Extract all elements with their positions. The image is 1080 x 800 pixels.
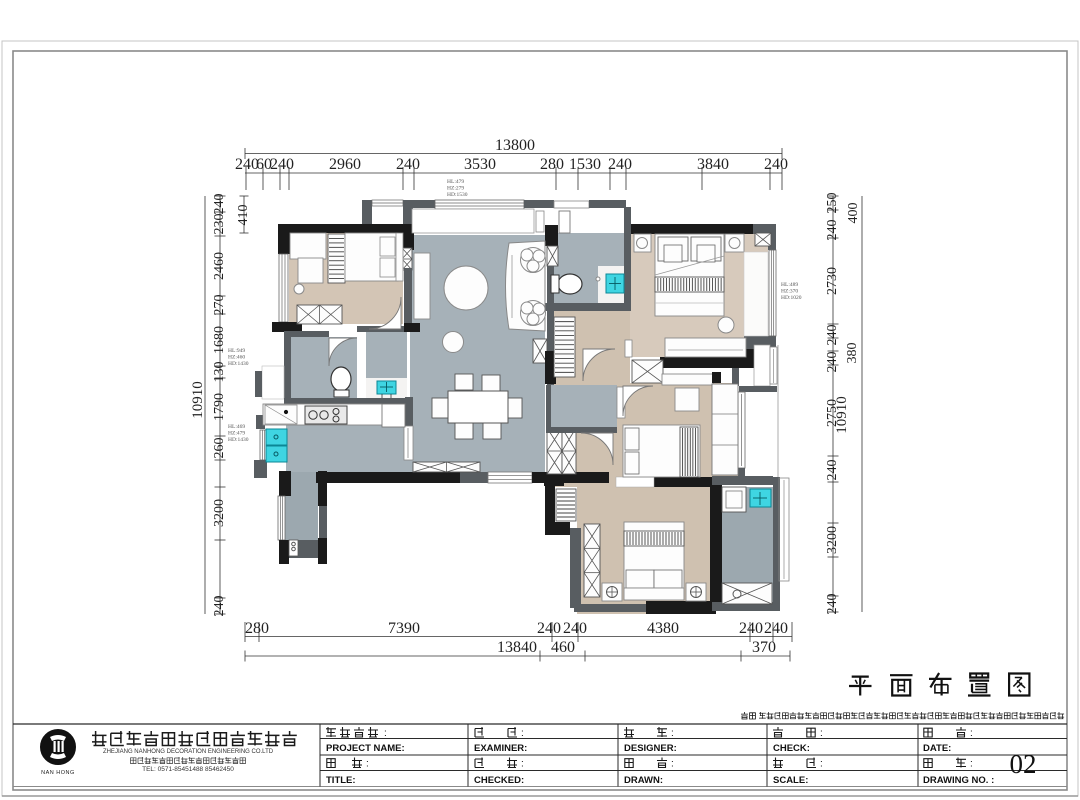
svg-text:240: 240 bbox=[825, 594, 840, 615]
svg-text:EXAMINER:: EXAMINER: bbox=[474, 743, 527, 754]
svg-text:2730: 2730 bbox=[825, 267, 840, 295]
svg-text:380: 380 bbox=[845, 343, 860, 364]
svg-text:3200: 3200 bbox=[825, 526, 840, 554]
svg-text:1680: 1680 bbox=[212, 326, 227, 354]
svg-text:7390: 7390 bbox=[388, 620, 420, 637]
svg-text::: : bbox=[671, 759, 674, 770]
svg-text:HD:1020: HD:1020 bbox=[781, 295, 802, 301]
svg-text:230: 230 bbox=[212, 214, 227, 235]
svg-text::: : bbox=[970, 728, 973, 739]
svg-text:240: 240 bbox=[212, 194, 227, 215]
svg-text:HD:1530: HD:1530 bbox=[447, 192, 468, 198]
svg-text::: : bbox=[366, 759, 369, 770]
svg-text:HL:489: HL:489 bbox=[781, 282, 798, 288]
svg-text::: : bbox=[970, 759, 973, 770]
svg-text:240: 240 bbox=[764, 620, 788, 637]
svg-text:240: 240 bbox=[825, 325, 840, 346]
svg-text::: : bbox=[820, 728, 823, 739]
svg-text:240: 240 bbox=[396, 156, 420, 173]
svg-text:DATE:: DATE: bbox=[923, 743, 951, 754]
svg-text:CHECKED:: CHECKED: bbox=[474, 775, 524, 786]
svg-text:250: 250 bbox=[825, 193, 840, 214]
svg-text:TITLE:: TITLE: bbox=[326, 775, 356, 786]
svg-text:DRAWN:: DRAWN: bbox=[624, 775, 663, 786]
svg-text:HZ:479: HZ:479 bbox=[228, 431, 245, 437]
svg-text:260: 260 bbox=[212, 438, 227, 459]
svg-text:CHECK:: CHECK: bbox=[773, 743, 810, 754]
svg-text:400: 400 bbox=[846, 203, 861, 224]
svg-text:240: 240 bbox=[212, 596, 227, 617]
svg-text:13800: 13800 bbox=[495, 137, 535, 154]
svg-text:DESIGNER:: DESIGNER: bbox=[624, 743, 677, 754]
svg-text:240: 240 bbox=[563, 620, 587, 637]
svg-text:280: 280 bbox=[540, 156, 564, 173]
svg-text:2960: 2960 bbox=[329, 156, 361, 173]
svg-text:NAN HONG: NAN HONG bbox=[41, 770, 75, 776]
svg-text:2460: 2460 bbox=[212, 252, 227, 280]
svg-text:ZHEJIANG NANHONG DECORATION EN: ZHEJIANG NANHONG DECORATION ENGINEERING … bbox=[103, 749, 274, 755]
svg-text:HZ:279: HZ:279 bbox=[447, 186, 464, 192]
svg-text:240: 240 bbox=[764, 156, 788, 173]
svg-text:TEL: 0571-85451488 85462450: TEL: 0571-85451488 85462450 bbox=[142, 766, 234, 773]
svg-text:HZ:370: HZ:370 bbox=[781, 289, 798, 295]
svg-text:HL:469: HL:469 bbox=[228, 424, 245, 430]
svg-text:130: 130 bbox=[212, 362, 227, 383]
svg-text:240: 240 bbox=[825, 352, 840, 373]
svg-text:SCALE:: SCALE: bbox=[773, 775, 808, 786]
svg-text::: : bbox=[521, 759, 524, 770]
svg-text:PROJECT NAME:: PROJECT NAME: bbox=[326, 743, 405, 754]
svg-text:3530: 3530 bbox=[464, 156, 496, 173]
svg-text:HL:479: HL:479 bbox=[447, 179, 464, 185]
svg-text:460: 460 bbox=[551, 639, 575, 656]
svg-text:3200: 3200 bbox=[212, 499, 227, 527]
svg-text:240: 240 bbox=[270, 156, 294, 173]
svg-text:HZ:460: HZ:460 bbox=[228, 355, 245, 361]
svg-text::: : bbox=[521, 728, 524, 739]
svg-text::: : bbox=[671, 728, 674, 739]
svg-text:240: 240 bbox=[608, 156, 632, 173]
svg-text:HD:1430: HD:1430 bbox=[228, 437, 249, 443]
svg-text:280: 280 bbox=[245, 620, 269, 637]
svg-text:DRAWING NO. :: DRAWING NO. : bbox=[923, 775, 994, 786]
svg-text::: : bbox=[384, 728, 387, 739]
svg-text:240: 240 bbox=[825, 220, 840, 241]
svg-text::: : bbox=[820, 759, 823, 770]
svg-text:270: 270 bbox=[212, 295, 227, 316]
svg-text:410: 410 bbox=[236, 205, 251, 226]
svg-text:370: 370 bbox=[752, 639, 776, 656]
svg-text:1530: 1530 bbox=[569, 156, 601, 173]
svg-text:HD:1430: HD:1430 bbox=[228, 361, 249, 367]
svg-text:240: 240 bbox=[537, 620, 561, 637]
svg-text:13840: 13840 bbox=[497, 639, 537, 656]
svg-text:10910: 10910 bbox=[834, 396, 850, 434]
svg-text:4380: 4380 bbox=[647, 620, 679, 637]
svg-text:HL:949: HL:949 bbox=[228, 348, 245, 354]
svg-text:1790: 1790 bbox=[212, 393, 227, 421]
svg-text:02: 02 bbox=[1010, 749, 1037, 779]
svg-text:240: 240 bbox=[739, 620, 763, 637]
svg-text:240: 240 bbox=[825, 460, 840, 481]
svg-text:10910: 10910 bbox=[190, 381, 206, 419]
